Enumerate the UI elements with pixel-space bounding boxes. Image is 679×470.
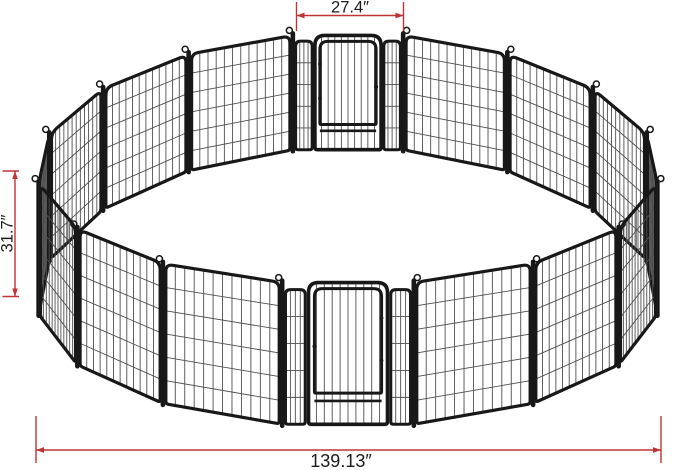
corner-hook-icon [414,275,420,281]
fence-panel [536,232,616,401]
corner-hook-icon [156,256,162,262]
dimension-top-door-width: 27.4″ [297,0,404,31]
fence-panel [510,57,590,207]
dimension-label-panel-height: 31.7″ [0,214,17,252]
corner-hook-icon [43,126,49,132]
arrowhead-right [396,13,404,19]
dimension-left-panel-height: 31.7″ [0,171,19,297]
corner-hook-icon [593,81,599,87]
arrowhead-up [12,171,18,179]
corner-hook-icon [286,27,292,33]
corner-hook-icon [32,176,38,182]
door-panel [296,35,401,149]
playpen-illustration [32,27,664,425]
arrowhead-left [36,447,44,453]
corner-hook-icon [508,46,514,52]
corner-hook-icon [97,81,103,87]
diagram-canvas: 27.4″ 31.7″ 139.13″ [0,0,679,470]
connector-post [32,176,39,316]
arrowhead-left [297,13,305,19]
dimension-label-door-width: 27.4″ [331,0,369,17]
arrowhead-right [653,447,661,453]
fence-panel [406,37,504,170]
connector-post [657,176,664,316]
door-panel [285,283,410,425]
product-dimension-diagram: 27.4″ 31.7″ 139.13″ [0,0,679,470]
dimension-label-overall-width: 139.13″ [310,451,372,470]
corner-hook-icon [182,46,188,52]
corner-hook-icon [647,126,653,132]
fence-panel [192,37,290,170]
arrowhead-down [12,289,18,297]
corner-hook-icon [404,27,410,33]
fence-panel [417,265,530,423]
corner-hook-icon [658,176,664,182]
fence-panel [166,265,279,423]
corner-hook-icon [534,256,540,262]
fence-panel [106,57,186,207]
fence-panel [80,232,160,401]
corner-hook-icon [276,275,282,281]
dimension-annotations: 27.4″ 31.7″ 139.13″ [0,0,661,470]
